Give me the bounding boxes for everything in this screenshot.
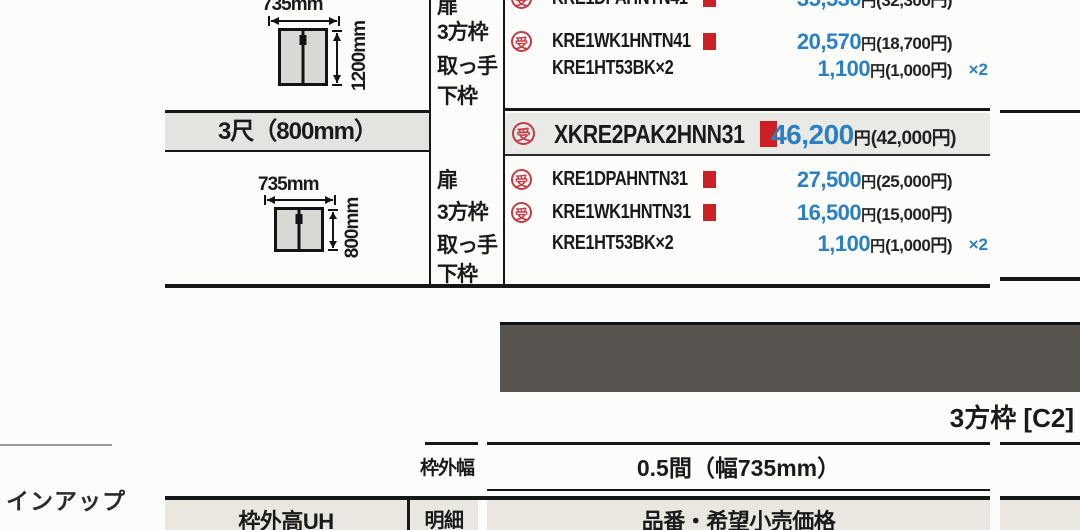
quantity-multiplier: ×2 <box>969 60 988 80</box>
spec-top-line <box>425 442 478 445</box>
price-row: 受 KRE1DPAHNTN41 35,530円(32,300円) <box>505 0 990 14</box>
upper-diagram-height-arrow <box>331 30 343 86</box>
item-label-frame: 3方枠 <box>437 196 488 226</box>
column-divider <box>503 0 505 287</box>
price-row: 受 KRE1DPAHNTN31 27,500円(25,000円) <box>505 167 990 195</box>
price-text: 35,530円(32,300円) <box>797 0 952 12</box>
spec-width-label: 枠外幅 <box>414 453 480 480</box>
price-text: 46,200円(42,000円) <box>771 119 956 151</box>
quantity-multiplier: ×2 <box>969 235 988 255</box>
height-header-cell: 枠外高UH <box>165 500 407 530</box>
price-row: 受 KRE1WK1HNTN31 16,500円(15,000円) <box>505 200 990 228</box>
part-number: KRE1DPAHNTN31 <box>552 168 688 191</box>
door-handle-mark <box>296 214 303 224</box>
price-text: 1,100円(1,000円) <box>818 56 952 82</box>
spec-width-value: 0.5間（幅735mm） <box>487 449 990 483</box>
price-text: 20,570円(18,700円) <box>797 29 952 55</box>
order-stamp-icon: 受 <box>511 0 532 9</box>
detail-header-cell: 明細 <box>410 500 478 530</box>
part-number: KRE1WK1HNTN31 <box>552 201 691 224</box>
part-number: KRE1HT53BK×2 <box>552 57 673 80</box>
price-row: KRE1HT53BK×2 1,100円(1,000円) ×2 <box>505 56 990 84</box>
column-divider <box>429 0 431 287</box>
upper-diagram-width-label: 735mm <box>262 0 323 16</box>
lower-diagram-width-arrow <box>264 194 336 206</box>
lower-diagram-height-label: 800mm <box>342 193 364 263</box>
price-header-cell: 品番・希望小売価格 <box>487 500 990 530</box>
detail-header-label: 明細 <box>410 504 478 530</box>
size-band: 3尺（800mm） <box>165 110 430 152</box>
order-stamp-icon: 受 <box>511 202 532 223</box>
right-header-cell <box>1000 500 1080 530</box>
lower-diagram-width-label: 735mm <box>258 174 319 196</box>
red-square-marker <box>703 33 716 50</box>
divider <box>1000 110 1080 113</box>
price-header-label: 品番・希望小売価格 <box>487 504 990 530</box>
red-square-marker <box>703 0 716 7</box>
price-text: 16,500円(15,000円) <box>797 200 952 226</box>
price-text: 27,500円(25,000円) <box>797 167 952 193</box>
upper-diagram-width-arrow <box>268 15 340 27</box>
door-handle-mark <box>300 35 307 45</box>
price-text: 1,100円(1,000円) <box>818 231 952 257</box>
red-square-marker <box>703 204 716 221</box>
part-number: KRE1WK1HNTN41 <box>552 30 691 53</box>
order-stamp-icon: 受 <box>511 169 532 190</box>
catalog-page: 735mm 1200mm 扉 3方枠 取っ手 下枠 受 KRE1DPAHNTN4… <box>0 0 1080 530</box>
part-number: KRE1HT53BK×2 <box>552 232 673 255</box>
divider <box>505 108 990 111</box>
item-label-frame: 3方枠 <box>437 16 488 46</box>
featured-price-row: 受 XKRE2PAK2HNN31 46,200円(42,000円) <box>505 113 990 156</box>
part-number: XKRE2PAK2HNN31 <box>554 119 745 150</box>
height-header-label: 枠外高UH <box>165 504 407 530</box>
order-stamp-icon: 受 <box>512 122 535 145</box>
item-label-door: 扉 <box>437 164 457 194</box>
item-label-handle: 取っ手 <box>437 229 497 259</box>
part-number: KRE1DPAHNTN41 <box>552 0 688 10</box>
lineup-label: インアップ <box>6 482 126 516</box>
spec-top-line <box>487 442 990 445</box>
section-caption: 3方枠 [C2] <box>950 398 1074 435</box>
item-label-bottomrail: 下枠 <box>437 80 477 110</box>
lower-door-diagram <box>274 207 324 252</box>
section-bottom-line <box>165 284 990 288</box>
price-row: KRE1HT53BK×2 1,100円(1,000円) ×2 <box>505 231 990 259</box>
order-stamp-icon: 受 <box>511 31 532 52</box>
divider <box>487 489 990 491</box>
upper-diagram-height-label: 1200mm <box>349 18 371 94</box>
section-bottom-line <box>1000 277 1080 281</box>
spec-top-line <box>1000 442 1080 445</box>
item-label-handle: 取っ手 <box>437 50 497 80</box>
price-row: 受 KRE1WK1HNTN41 20,570円(18,700円) <box>505 29 990 57</box>
section-banner <box>500 322 1080 392</box>
lineup-rule <box>0 444 112 446</box>
red-square-marker <box>703 171 716 188</box>
upper-door-diagram <box>278 28 328 86</box>
lower-diagram-height-arrow <box>327 209 339 251</box>
